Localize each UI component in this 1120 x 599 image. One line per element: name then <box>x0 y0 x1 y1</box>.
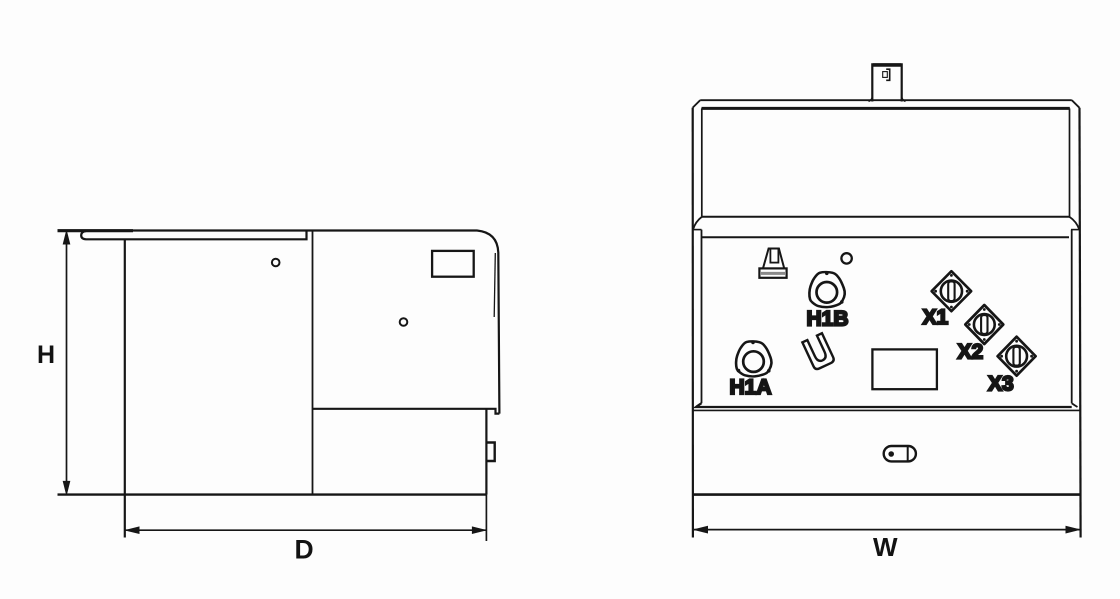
svg-text:D: D <box>295 534 314 564</box>
svg-text:X2: X2 <box>958 340 984 363</box>
svg-text:H1B: H1B <box>807 307 849 330</box>
svg-text:X3: X3 <box>988 373 1014 396</box>
svg-text:W: W <box>873 532 898 562</box>
svg-text:H: H <box>37 341 55 369</box>
svg-text:H1A: H1A <box>730 376 772 399</box>
svg-text:X1: X1 <box>923 306 949 329</box>
